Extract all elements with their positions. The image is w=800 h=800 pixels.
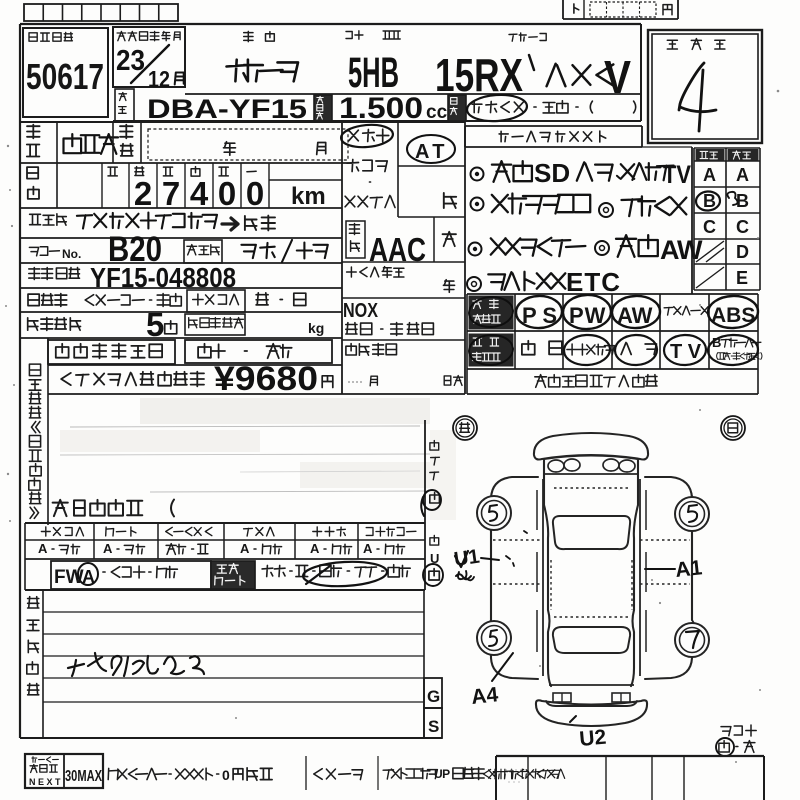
svg-text:TV: TV: [663, 161, 691, 189]
svg-text:A: A: [38, 541, 48, 556]
svg-text:2: 2: [134, 175, 152, 212]
svg-text:C: C: [736, 217, 749, 237]
svg-text:4: 4: [190, 175, 209, 212]
svg-text:PW: PW: [569, 303, 606, 328]
svg-text:E: E: [736, 268, 748, 288]
svg-text:AAC: AAC: [369, 231, 426, 268]
svg-text:C: C: [703, 217, 716, 237]
svg-text:S: S: [428, 717, 439, 736]
svg-text:U1: U1: [453, 546, 481, 571]
svg-text:30MAX: 30MAX: [65, 768, 102, 785]
svg-text:T V: T V: [670, 341, 702, 363]
svg-text:0: 0: [218, 175, 236, 212]
svg-text:km: km: [291, 183, 326, 210]
svg-text:0: 0: [246, 175, 264, 212]
svg-text:A1: A1: [674, 556, 703, 582]
svg-text:A: A: [103, 541, 113, 556]
svg-text:A T: A T: [415, 141, 444, 163]
svg-text:A: A: [736, 165, 749, 185]
svg-text:YF15-048808: YF15-048808: [90, 262, 236, 293]
svg-text:¥9680: ¥9680: [214, 360, 318, 398]
svg-text:NOX: NOX: [343, 300, 379, 322]
svg-text:No.: No.: [62, 247, 81, 261]
svg-text:UP: UP: [434, 767, 450, 781]
svg-text:DBA-YF15: DBA-YF15: [147, 94, 307, 124]
svg-text:7: 7: [162, 175, 180, 212]
svg-text:kg: kg: [308, 320, 324, 336]
svg-text:5HB: 5HB: [348, 49, 399, 97]
svg-text:ETC: ETC: [566, 267, 621, 297]
svg-text:D: D: [736, 242, 749, 262]
svg-text:A: A: [310, 541, 320, 556]
svg-text:A: A: [363, 541, 373, 556]
svg-text:50617: 50617: [26, 56, 104, 97]
svg-text:cc: cc: [426, 102, 448, 123]
svg-text:V: V: [604, 51, 631, 103]
svg-text:U2: U2: [578, 726, 607, 751]
svg-text:0: 0: [222, 767, 230, 783]
svg-text:5: 5: [146, 306, 164, 343]
svg-text:SD: SD: [534, 158, 570, 188]
svg-text:1.500: 1.500: [339, 92, 423, 125]
svg-text:G: G: [427, 687, 440, 706]
svg-text:A: A: [703, 165, 716, 185]
svg-text:12: 12: [148, 66, 170, 92]
svg-text:A: A: [240, 541, 250, 556]
svg-text:A4: A4: [470, 683, 499, 709]
svg-text:N E X T: N E X T: [29, 777, 61, 787]
